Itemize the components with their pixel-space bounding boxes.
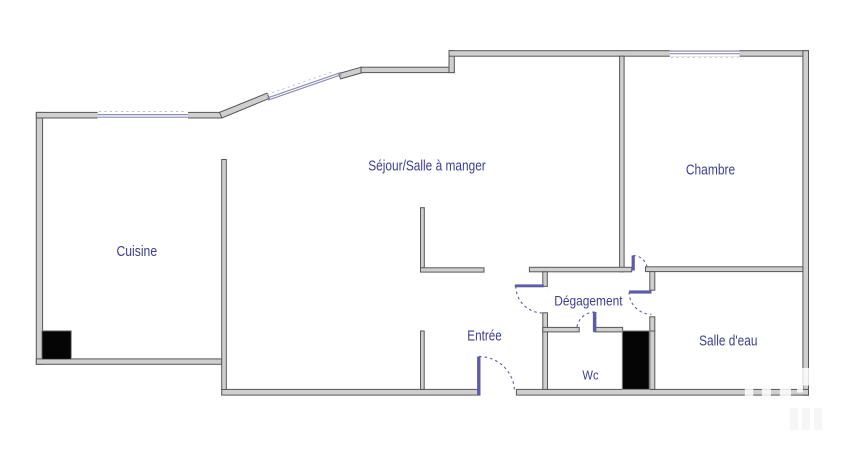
svg-text:Entrée: Entrée xyxy=(467,327,501,344)
svg-text:Séjour/Salle à manger: Séjour/Salle à manger xyxy=(368,157,486,174)
svg-text:Chambre: Chambre xyxy=(686,161,735,178)
svg-text:Wc: Wc xyxy=(582,368,598,382)
svg-text:Cuisine: Cuisine xyxy=(117,243,158,260)
svg-text:Salle d'eau: Salle d'eau xyxy=(699,333,757,349)
svg-text:Dégagement: Dégagement xyxy=(554,292,622,308)
